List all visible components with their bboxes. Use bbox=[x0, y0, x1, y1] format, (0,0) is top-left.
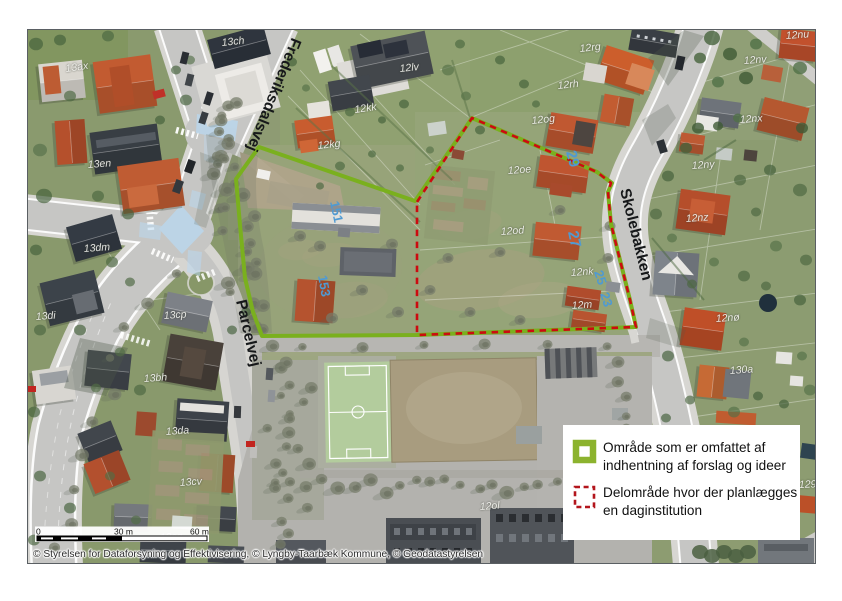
svg-text:13en: 13en bbox=[87, 157, 111, 171]
svg-text:12kg: 12kg bbox=[317, 138, 341, 152]
svg-text:0: 0 bbox=[36, 527, 41, 537]
svg-text:12od: 12od bbox=[500, 224, 525, 238]
svg-text:12nx: 12nx bbox=[739, 112, 763, 126]
svg-text:60 m: 60 m bbox=[190, 527, 209, 537]
svg-text:12ol: 12ol bbox=[479, 500, 500, 513]
svg-text:13ch: 13ch bbox=[221, 35, 245, 49]
svg-text:12nz: 12nz bbox=[685, 211, 709, 225]
svg-text:12oe: 12oe bbox=[507, 163, 531, 177]
svg-text:indhentning af forslag og idee: indhentning af forslag og ideer bbox=[603, 458, 786, 473]
svg-text:12lv: 12lv bbox=[399, 61, 420, 75]
svg-text:13da: 13da bbox=[165, 424, 189, 438]
svg-text:13cv: 13cv bbox=[179, 475, 203, 489]
svg-text:13di: 13di bbox=[35, 310, 56, 323]
svg-text:27: 27 bbox=[564, 229, 584, 249]
svg-text:13bh: 13bh bbox=[143, 371, 167, 385]
svg-text:12ny: 12ny bbox=[691, 158, 715, 172]
svg-text:Område som er omfattet af: Område som er omfattet af bbox=[603, 440, 766, 455]
svg-text:12nk: 12nk bbox=[570, 265, 594, 279]
svg-text:12nø: 12nø bbox=[715, 311, 740, 325]
svg-text:12nu: 12nu bbox=[785, 28, 809, 42]
svg-text:129: 129 bbox=[799, 478, 817, 491]
svg-text:12rg: 12rg bbox=[579, 41, 601, 55]
svg-text:130a: 130a bbox=[729, 363, 753, 377]
svg-text:12m: 12m bbox=[571, 299, 592, 312]
svg-text:Delområde hvor der planlægges: Delområde hvor der planlægges bbox=[603, 485, 797, 500]
svg-text:13dm: 13dm bbox=[83, 241, 110, 255]
svg-text:13cp: 13cp bbox=[163, 308, 187, 322]
svg-text:© Styrelsen for Dataforsyning: © Styrelsen for Dataforsyning og Effekti… bbox=[33, 549, 483, 560]
svg-text:30 m: 30 m bbox=[114, 527, 133, 537]
svg-text:en daginstitution: en daginstitution bbox=[603, 503, 702, 518]
svg-text:12nv: 12nv bbox=[743, 53, 767, 67]
svg-text:12rh: 12rh bbox=[557, 78, 579, 92]
svg-text:12og: 12og bbox=[531, 113, 556, 127]
